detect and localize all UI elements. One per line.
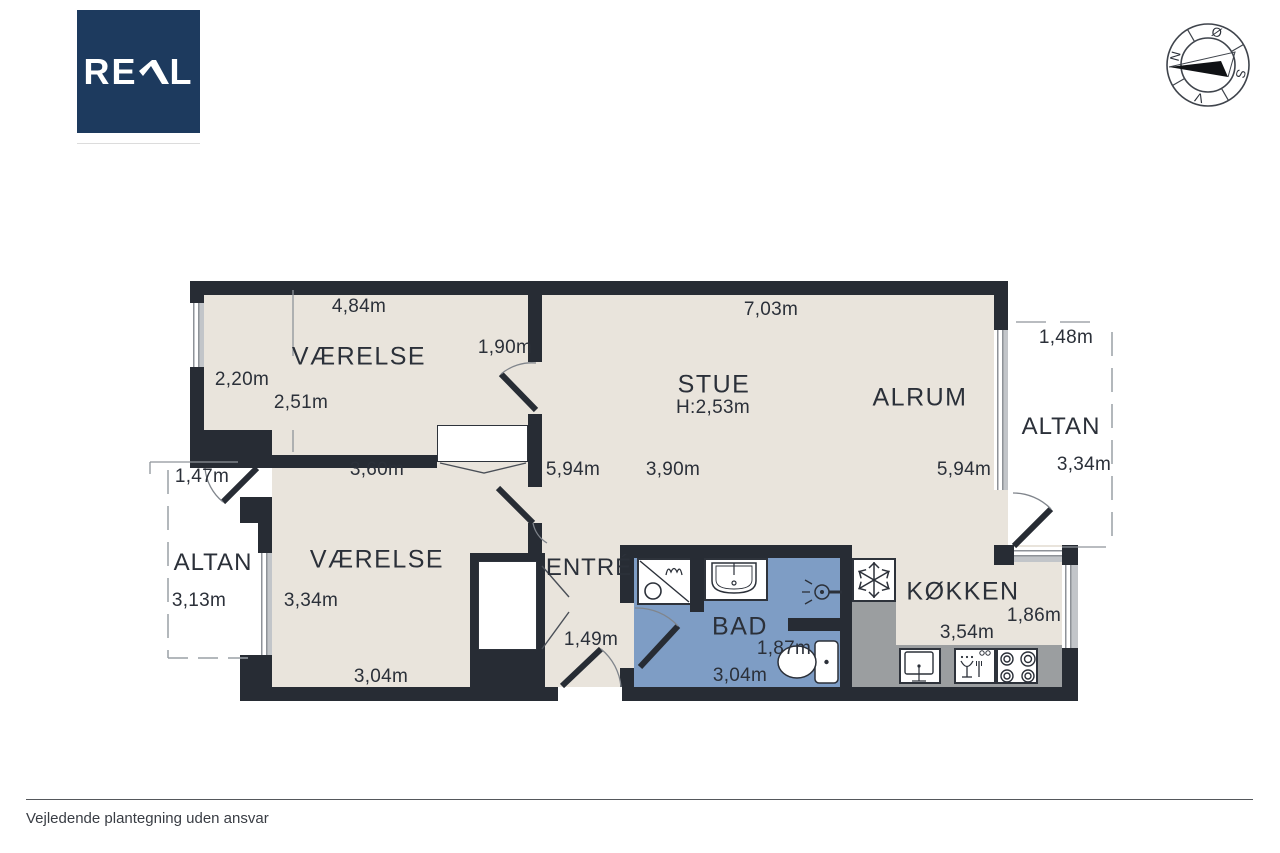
wall — [240, 687, 558, 701]
wall — [1062, 545, 1078, 565]
wall — [622, 687, 1078, 701]
dim-label: 1,49m — [564, 629, 618, 651]
dim-label: 7,03m — [744, 299, 798, 321]
stove-box — [996, 648, 1038, 684]
logo-prefix: RE — [83, 54, 137, 90]
window — [1062, 565, 1078, 648]
wall — [994, 545, 1014, 565]
dim-label: 2,20m — [215, 369, 269, 391]
window — [258, 553, 272, 655]
wall — [250, 455, 437, 468]
room-label-vaerelse2: VÆRELSE — [310, 546, 444, 575]
wall — [528, 523, 542, 555]
wall — [240, 497, 272, 523]
footer-divider — [26, 799, 1253, 800]
freezer-box — [852, 558, 896, 602]
brand-logo-text: RE L — [83, 54, 193, 90]
dim-label: 1,47m — [175, 466, 229, 488]
wardrobe-box — [437, 425, 528, 462]
dim-label: 3,13m — [172, 590, 226, 612]
kitchen-counter-left — [852, 602, 896, 687]
room-label-alrum: ALRUM — [872, 384, 967, 413]
dim-label: 1,86m — [1007, 605, 1061, 627]
window — [190, 303, 204, 367]
washing-machine-box — [637, 558, 692, 605]
room-label-vaerelse1: VÆRELSE — [292, 343, 426, 372]
dim-label: 3,60m — [350, 459, 404, 481]
dim-label: 1,48m — [1039, 327, 1093, 349]
dim-label: 5,94m — [937, 459, 991, 481]
wall — [620, 668, 634, 687]
dishwasher-box — [954, 648, 996, 684]
dim-label: 1,90m — [478, 337, 532, 359]
dim-label: 1,87m — [757, 638, 811, 660]
entre-closet-inner — [478, 561, 537, 650]
wall — [840, 558, 852, 687]
room-label-kokken: KØKKEN — [906, 578, 1019, 607]
room-label-stue: STUE — [678, 371, 751, 400]
logo-underline — [77, 143, 200, 144]
dim-label: 4,84m — [332, 296, 386, 318]
washbasin-box — [704, 558, 768, 601]
floor-top-band — [204, 295, 1008, 455]
room-label-altan-right: ALTAN — [1022, 413, 1101, 441]
logo-suffix: L — [170, 54, 194, 90]
kitchen-sink-box — [899, 648, 941, 684]
brand-logo: RE L — [77, 10, 200, 133]
disclaimer-text: Vejledende plantegning uden ansvar — [26, 810, 269, 827]
wall — [690, 558, 704, 612]
dim-label: 3,04m — [713, 665, 767, 687]
wall — [788, 618, 840, 631]
dim-label: 5,94m — [546, 459, 600, 481]
wall — [470, 658, 545, 687]
wall — [528, 414, 542, 487]
wall — [620, 545, 852, 558]
dim-label: 3,54m — [940, 622, 994, 644]
dim-label: 3,90m — [646, 459, 700, 481]
dim-label: 3,34m — [1057, 454, 1111, 476]
logo-a-glyph — [139, 57, 169, 87]
floorplan-page: RE L Ø S V N — [0, 0, 1280, 853]
dim-label: 2,51m — [274, 392, 328, 414]
compass-icon: Ø S V N — [1158, 15, 1258, 115]
window — [994, 330, 1008, 490]
room-label-entre: ENTRÉ — [546, 554, 632, 582]
room-label-altan-left: ALTAN — [174, 549, 253, 577]
dim-label: 3,04m — [354, 666, 408, 688]
wall — [994, 281, 1008, 330]
ceiling-height-label: H:2,53m — [676, 397, 750, 419]
wall — [190, 281, 1008, 295]
window — [1014, 547, 1062, 562]
dim-label: 3,34m — [284, 590, 338, 612]
